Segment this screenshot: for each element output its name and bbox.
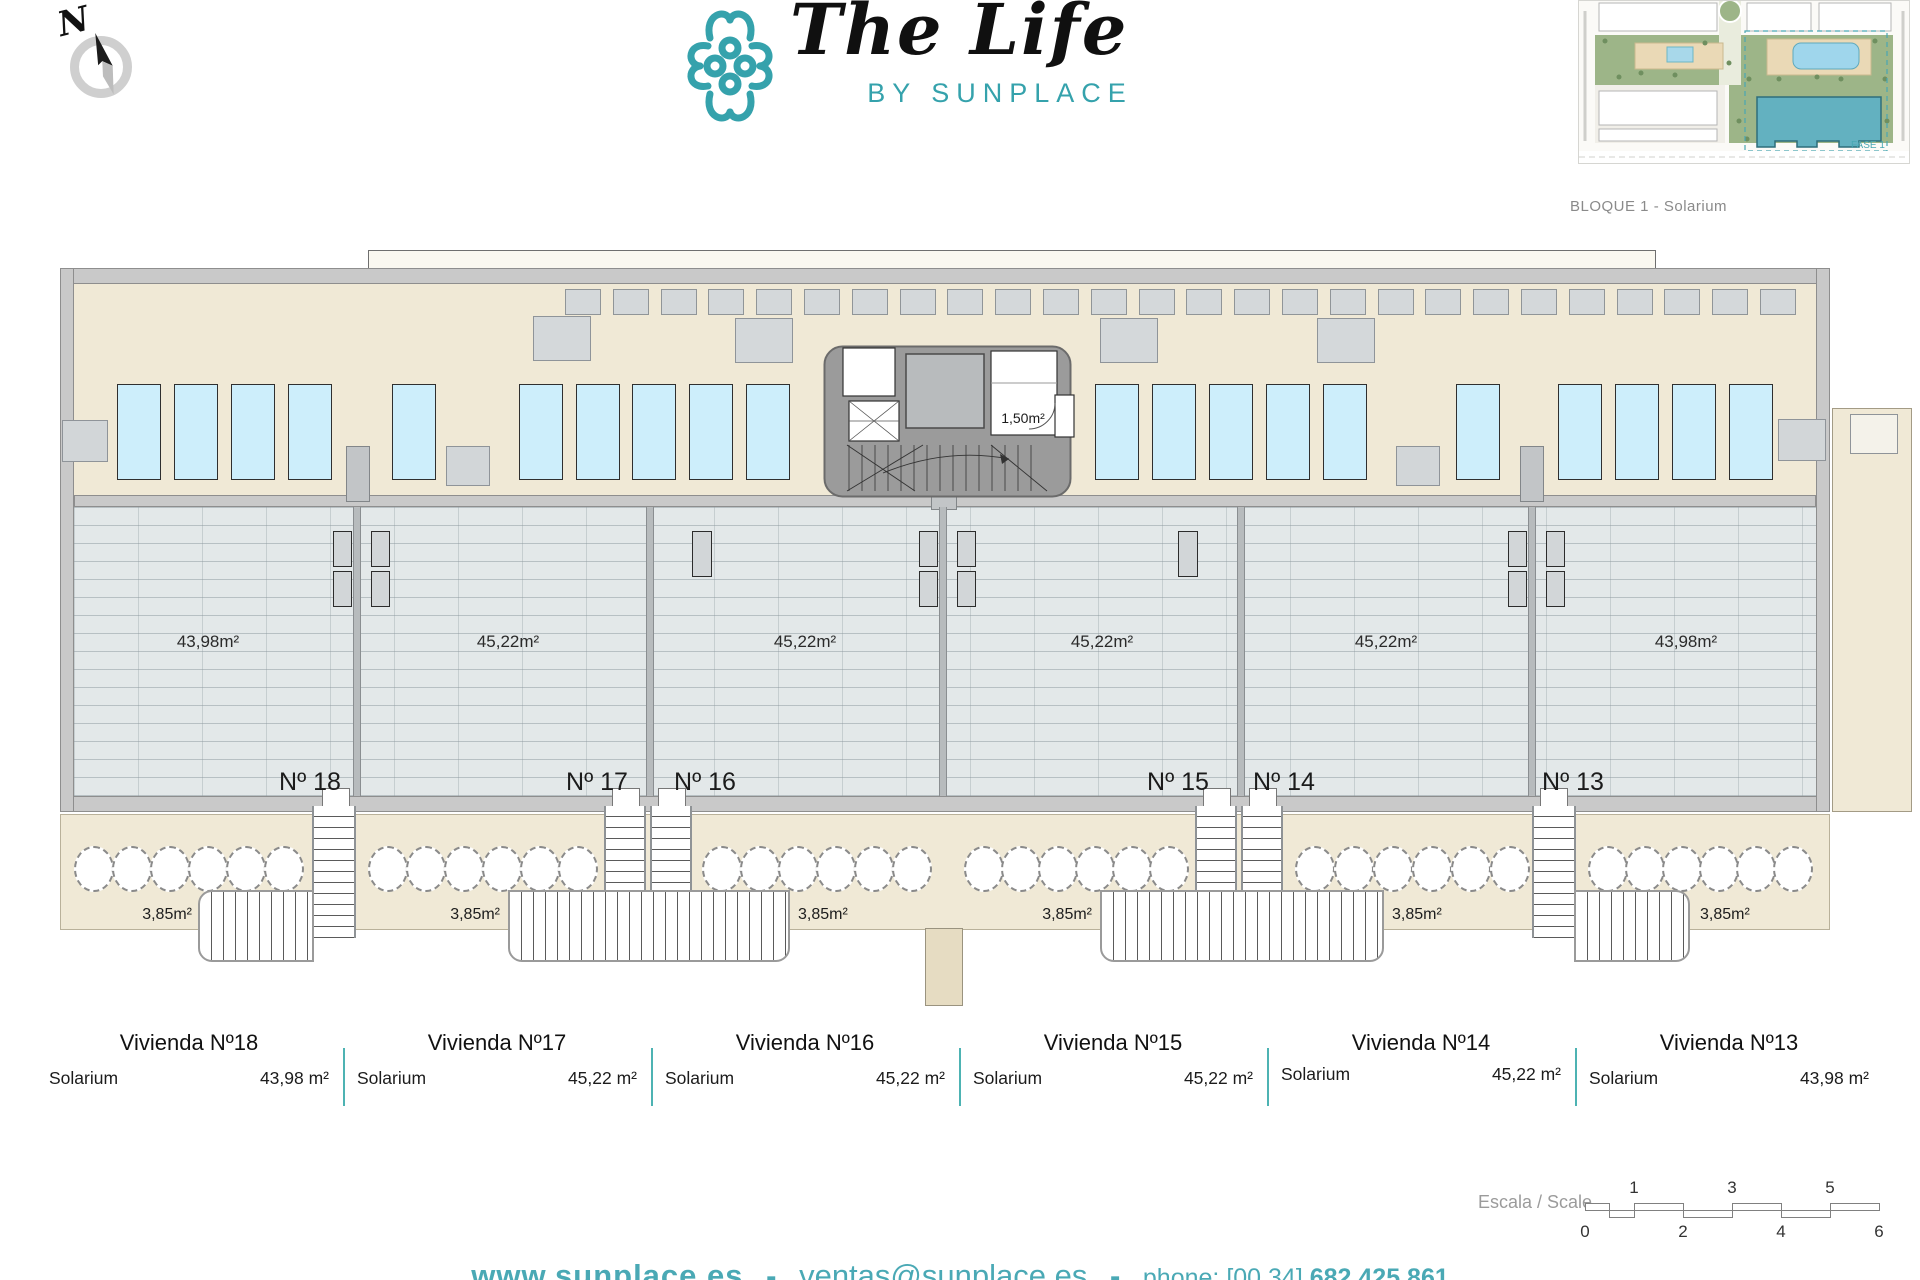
- pergola-vent: [1234, 289, 1270, 315]
- sun-lounger: [1266, 384, 1310, 480]
- legend-unit-13: Vivienda Nº13 Solarium 43,98 m²: [1575, 1030, 1883, 1110]
- stair-area-label-13: 3,85m²: [1700, 906, 1782, 924]
- pergola-vent: [1330, 289, 1366, 315]
- walkway-planter: [1662, 846, 1702, 892]
- pergola-vent: [1139, 289, 1175, 315]
- legend-value: 45,22 m²: [1184, 1068, 1253, 1089]
- legend-value: 45,22 m²: [876, 1068, 945, 1089]
- core-room-area-label: 1,50m²: [1001, 410, 1045, 426]
- stair-tower-18: [312, 806, 356, 938]
- legend-value: 43,98 m²: [1800, 1068, 1869, 1089]
- skylight: [533, 316, 591, 361]
- walkway-planter: [406, 846, 446, 892]
- stair-landing-15-14: [1100, 890, 1384, 962]
- walkway-planter: [702, 846, 742, 892]
- walkway-planter: [264, 846, 304, 892]
- scale-tick: 2: [1668, 1222, 1698, 1242]
- walkway-planter: [1451, 846, 1491, 892]
- legend-unit-16: Vivienda Nº16 Solarium 45,22 m²: [651, 1030, 959, 1110]
- unit-divider-wall: [1237, 507, 1245, 796]
- legend-label: Solarium: [665, 1068, 734, 1088]
- walkway-planter: [226, 846, 266, 892]
- legend-title: Vivienda Nº17: [343, 1030, 651, 1056]
- unit-area-18: 43,98m²: [148, 632, 268, 652]
- stair-area-label-16: 3,85m²: [798, 906, 880, 924]
- footer-separator: -: [766, 1258, 776, 1280]
- pergola-vent: [1521, 289, 1557, 315]
- sun-lounger: [288, 384, 332, 480]
- scale-tick: 5: [1815, 1178, 1845, 1198]
- walkway-planter: [892, 846, 932, 892]
- unit-area-16: 45,22m²: [745, 632, 865, 652]
- walkway-planter: [368, 846, 408, 892]
- scale-tick: 4: [1766, 1222, 1796, 1242]
- walkway-planter: [444, 846, 484, 892]
- sun-lounger: [1209, 384, 1253, 480]
- footer-contact-bar: www.sunplace.es - ventas@sunplace.es - p…: [0, 1258, 1920, 1280]
- walkway-planter: [150, 846, 190, 892]
- unit-number-17: Nº 17: [537, 768, 657, 797]
- pergola-vent: [1425, 289, 1461, 315]
- pergola-vent: [756, 289, 792, 315]
- sun-lounger: [576, 384, 620, 480]
- ac-unit: [1546, 531, 1565, 567]
- pergola-vent: [995, 289, 1031, 315]
- legend-label: Solarium: [49, 1068, 118, 1088]
- sun-lounger: [632, 384, 676, 480]
- phone-text: phone: [00 34] 682 425 861: [1143, 1264, 1449, 1280]
- ac-unit: [1508, 571, 1527, 607]
- walkway-planter: [1412, 846, 1452, 892]
- walkway-planter: [1112, 846, 1152, 892]
- legend-label: Solarium: [357, 1068, 426, 1088]
- ac-unit: [371, 531, 390, 567]
- ac-unit: [919, 531, 938, 567]
- walkway-planter: [778, 846, 818, 892]
- pergola-vent: [1378, 289, 1414, 315]
- legend-value: 45,22 m²: [568, 1068, 637, 1089]
- pergola-vent: [1186, 289, 1222, 315]
- phone-number: 682 425 861: [1310, 1264, 1449, 1280]
- unit-area-13: 43,98m²: [1626, 632, 1746, 652]
- walkway-planter: [112, 846, 152, 892]
- walkway-planter: [520, 846, 560, 892]
- legend-divider: [1575, 1048, 1577, 1106]
- legend-unit-14: Vivienda Nº14 Solarium 45,22 m²: [1267, 1030, 1575, 1110]
- walkway-planter: [1736, 846, 1776, 892]
- ac-unit: [371, 571, 390, 607]
- sun-lounger: [1456, 384, 1500, 480]
- legend-title: Vivienda Nº14: [1267, 1030, 1575, 1056]
- plan-shapes-layer: [0, 0, 1920, 1030]
- pergola-vent: [1043, 289, 1079, 315]
- pergola-vent: [1617, 289, 1653, 315]
- legend-label: Solarium: [1281, 1064, 1350, 1084]
- pergola-vent: [1091, 289, 1127, 315]
- sun-lounger: [1672, 384, 1716, 480]
- walkway-planter: [482, 846, 522, 892]
- stair-landing-13: [1574, 890, 1690, 962]
- pergola-vent: [947, 289, 983, 315]
- legend-divider: [1267, 1048, 1269, 1106]
- walkway-planter: [1588, 846, 1628, 892]
- sun-lounger: [1558, 384, 1602, 480]
- unit-divider-wall: [646, 507, 654, 796]
- sun-lounger: [1095, 384, 1139, 480]
- legend-title: Vivienda Nº18: [35, 1030, 343, 1056]
- legend-value: 45,22 m²: [1492, 1064, 1561, 1085]
- legend-divider: [651, 1048, 653, 1106]
- scale-tick: 1: [1619, 1178, 1649, 1198]
- stair-area-label-14: 3,85m²: [1392, 906, 1474, 924]
- pergola-vent: [1664, 289, 1700, 315]
- pergola-vent: [852, 289, 888, 315]
- pergola-vent: [1712, 289, 1748, 315]
- legend-title: Vivienda Nº15: [959, 1030, 1267, 1056]
- legend-value: 43,98 m²: [260, 1068, 329, 1089]
- skylight: [1100, 318, 1158, 363]
- scale-tick: 0: [1570, 1222, 1600, 1242]
- ac-unit: [333, 531, 352, 567]
- walkway-planter: [854, 846, 894, 892]
- scale-bar: 1 3 5 0 2 4 6: [1585, 1170, 1885, 1230]
- ac-unit: [1546, 571, 1565, 607]
- walkway-planter: [1490, 846, 1530, 892]
- pergola-vent: [804, 289, 840, 315]
- unit-divider-wall: [353, 507, 361, 796]
- stair-area-label-15: 3,85m²: [1010, 906, 1092, 924]
- floor-plan-page: N The Life BY SUNPLAC: [0, 0, 1920, 1280]
- sun-lounger: [174, 384, 218, 480]
- ac-unit: [957, 531, 976, 567]
- legend-unit-18: Vivienda Nº18 Solarium 43,98 m²: [35, 1030, 343, 1110]
- walkway-planter: [816, 846, 856, 892]
- walkway-planter: [1038, 846, 1078, 892]
- walkway-planter: [1625, 846, 1665, 892]
- stair-area-label-18: 3,85m²: [110, 906, 192, 924]
- pergola-vent: [1282, 289, 1318, 315]
- legend-label: Solarium: [1589, 1068, 1658, 1088]
- pergola-vent: [900, 289, 936, 315]
- wall-stub: [1520, 446, 1544, 502]
- walkway-planter: [1773, 846, 1813, 892]
- pergola-vent: [661, 289, 697, 315]
- stair-core: 1,50m²: [823, 345, 1075, 498]
- legend-unit-15: Vivienda Nº15 Solarium 45,22 m²: [959, 1030, 1267, 1110]
- legend-label: Solarium: [973, 1068, 1042, 1088]
- skylight: [735, 318, 793, 363]
- walkway-planter: [188, 846, 228, 892]
- sun-lounger: [392, 384, 436, 480]
- pergola-vent: [1569, 289, 1605, 315]
- unit-area-17: 45,22m²: [448, 632, 568, 652]
- walkway-planter: [1075, 846, 1115, 892]
- walkway-planter: [1334, 846, 1374, 892]
- walkway-planter: [1149, 846, 1189, 892]
- email-link[interactable]: ventas@sunplace.es: [799, 1258, 1087, 1280]
- unit-number-13: Nº 13: [1513, 768, 1633, 797]
- unit-number-16: Nº 16: [645, 768, 765, 797]
- scale-label: Escala / Scale: [1478, 1192, 1592, 1213]
- unit-number-15: Nº 15: [1118, 768, 1238, 797]
- unit-divider-wall: [939, 507, 947, 796]
- sun-lounger: [519, 384, 563, 480]
- unit-area-14: 45,22m²: [1326, 632, 1446, 652]
- ac-unit: [333, 571, 352, 607]
- scale-tick: 6: [1864, 1222, 1894, 1242]
- legend-divider: [959, 1048, 961, 1106]
- footer-separator: -: [1110, 1258, 1120, 1280]
- sun-lounger: [117, 384, 161, 480]
- terrace-bench: [446, 446, 490, 486]
- unit-divider-wall: [1528, 507, 1536, 796]
- pergola-vent: [565, 289, 601, 315]
- sun-lounger: [1615, 384, 1659, 480]
- wall-pillar: [1778, 419, 1826, 461]
- website-link[interactable]: www.sunplace.es: [471, 1258, 743, 1280]
- sun-lounger: [231, 384, 275, 480]
- skylight: [1317, 318, 1375, 363]
- unit-number-18: Nº 18: [250, 768, 370, 797]
- unit-number-14: Nº 14: [1224, 768, 1344, 797]
- terrace-bench: [1396, 446, 1440, 486]
- sun-lounger: [689, 384, 733, 480]
- pergola-vent: [1760, 289, 1796, 315]
- legend-unit-17: Vivienda Nº17 Solarium 45,22 m²: [343, 1030, 651, 1110]
- scale-tick: 3: [1717, 1178, 1747, 1198]
- floor-plan: 1,50m² 3,85m² 3,85m² 3,85m² 3,85m² 3,85m…: [0, 0, 1920, 1030]
- walkway-planter: [740, 846, 780, 892]
- wall-pillar: [62, 420, 108, 462]
- stair-landing-17-16: [508, 890, 790, 962]
- sun-lounger: [1729, 384, 1773, 480]
- walkway-planter: [1295, 846, 1335, 892]
- wall-stub: [346, 446, 370, 502]
- pergola-vent: [708, 289, 744, 315]
- stair-landing-18: [198, 890, 314, 962]
- sun-lounger: [746, 384, 790, 480]
- walkway-planter: [74, 846, 114, 892]
- walkway-planter: [1699, 846, 1739, 892]
- walkway-planter: [558, 846, 598, 892]
- stair-tower-13: [1532, 806, 1576, 938]
- sun-lounger: [1323, 384, 1367, 480]
- pergola-vent: [1473, 289, 1509, 315]
- legend-divider: [343, 1048, 345, 1106]
- ac-unit: [919, 571, 938, 607]
- ac-unit: [1178, 531, 1198, 577]
- pergola-vent: [613, 289, 649, 315]
- sun-lounger: [1152, 384, 1196, 480]
- unit-area-15: 45,22m²: [1042, 632, 1162, 652]
- legend-title: Vivienda Nº16: [651, 1030, 959, 1056]
- walkway-planter: [964, 846, 1004, 892]
- ac-unit: [692, 531, 712, 577]
- legend-title: Vivienda Nº13: [1575, 1030, 1883, 1056]
- walkway-planter: [1001, 846, 1041, 892]
- stair-area-label-17: 3,85m²: [418, 906, 500, 924]
- ac-unit: [957, 571, 976, 607]
- walkway-planter: [1373, 846, 1413, 892]
- ac-unit: [1508, 531, 1527, 567]
